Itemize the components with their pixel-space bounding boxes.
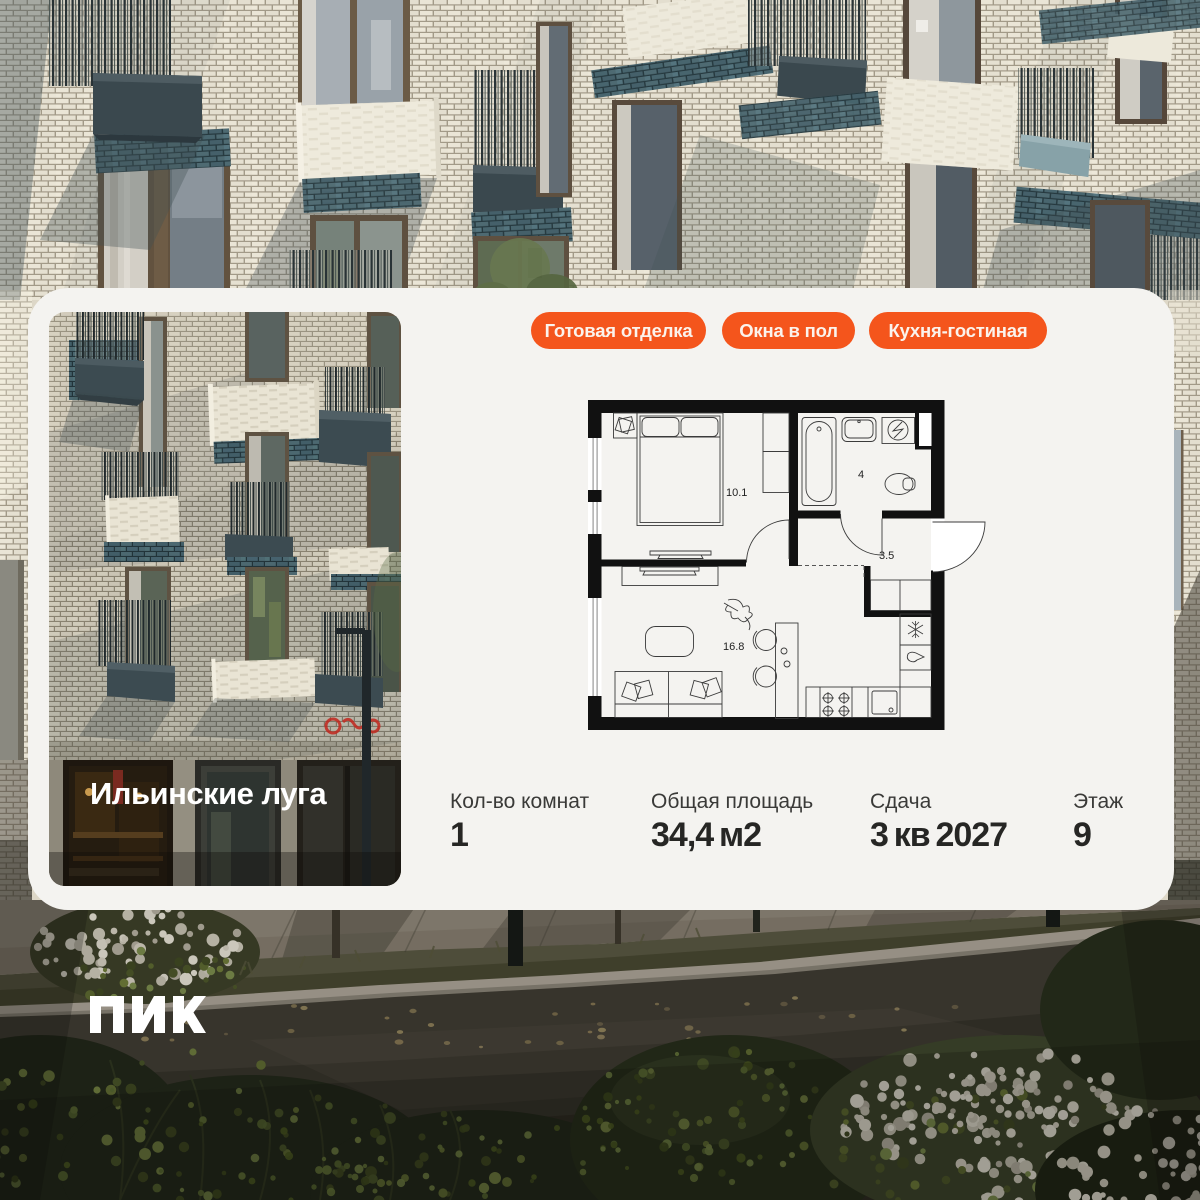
svg-text:Ильинские луга: Ильинские луга <box>90 776 327 811</box>
svg-text:10.1: 10.1 <box>726 487 747 499</box>
svg-text:3.5: 3.5 <box>879 550 894 562</box>
svg-text:16.8: 16.8 <box>723 641 744 653</box>
svg-text:4: 4 <box>858 469 864 481</box>
